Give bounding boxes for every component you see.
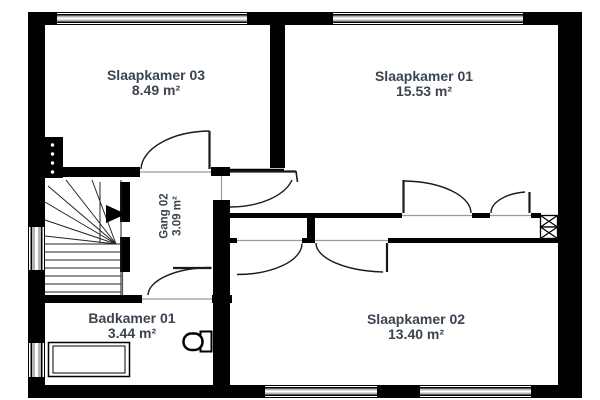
staircase-icon	[45, 180, 121, 295]
room-name: Slaapkamer 03	[107, 68, 205, 83]
door-swing-sk01-closet-1	[404, 181, 471, 213]
meter-cupboard-dots	[51, 143, 54, 173]
room-area: 3.09 m²	[171, 193, 184, 238]
duct-shaft-icon	[541, 216, 558, 239]
room-name: Gang 02	[159, 193, 172, 238]
room-label-slaapkamer-01: Slaapkamer 01 15.53 m²	[375, 69, 473, 99]
room-area: 15.53 m²	[375, 84, 473, 99]
room-label-slaapkamer-03: Slaapkamer 03 8.49 m²	[107, 68, 205, 98]
door-swing-bathroom	[148, 268, 211, 296]
door-swing-sk01-closet-2	[491, 192, 525, 213]
door-thresholds	[140, 172, 531, 299]
room-area: 8.49 m²	[107, 83, 205, 98]
room-area: 13.40 m²	[367, 327, 465, 342]
door-swing-sk02-closet	[316, 243, 383, 272]
door-leaf-sk01-end	[296, 171, 298, 182]
door-swing-sk02-entry	[237, 244, 302, 275]
door-swing-sk01	[230, 180, 292, 207]
room-name: Slaapkamer 02	[367, 312, 465, 327]
room-area: 3.44 m²	[88, 326, 175, 341]
stair-direction-arrow-icon	[106, 205, 126, 223]
room-name: Slaapkamer 01	[375, 69, 473, 84]
toilet-icon	[184, 332, 212, 352]
bathtub-icon	[49, 343, 130, 377]
floor-plan: Slaapkamer 03 8.49 m² Slaapkamer 01 15.5…	[0, 0, 600, 400]
room-label-gang-02: Gang 02 3.09 m²	[159, 193, 184, 238]
room-label-slaapkamer-02: Slaapkamer 02 13.40 m²	[367, 312, 465, 342]
room-name: Badkamer 01	[88, 311, 175, 326]
doors	[141, 131, 530, 295]
door-swing-sk03	[141, 131, 210, 169]
room-label-badkamer-01: Badkamer 01 3.44 m²	[88, 311, 175, 341]
